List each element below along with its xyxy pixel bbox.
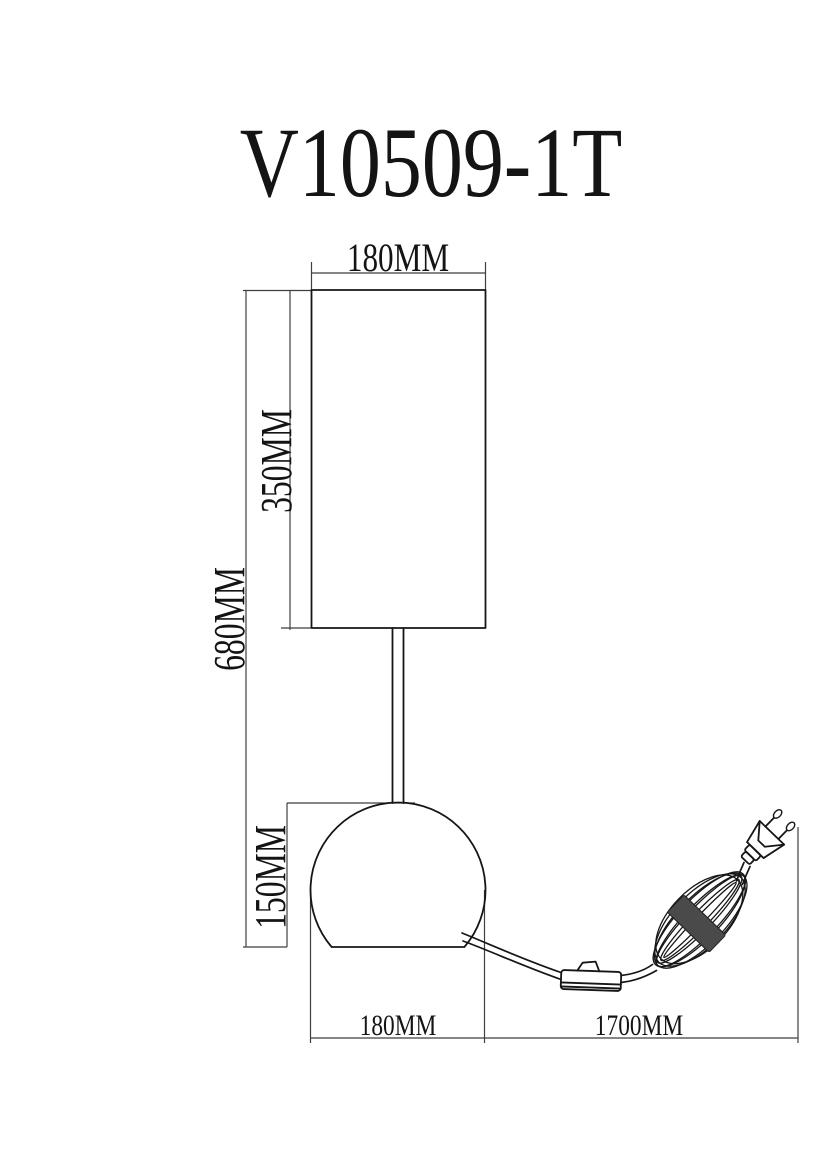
power-cord	[462, 933, 657, 983]
dim-label-total-height: 680MM	[208, 567, 252, 671]
dim-label-shade-height: 350MM	[255, 409, 299, 513]
lamp-shade-outline	[312, 290, 486, 628]
power-plug	[733, 805, 800, 872]
lamp-base-sphere	[311, 803, 486, 947]
technical-drawing-page: V10509-1T 180MM 350MM 680MM 150MM 180MM …	[0, 0, 825, 1168]
dim-label-base-height: 150MM	[249, 825, 293, 929]
product-code-title: V10509-1T	[240, 113, 623, 213]
dim-label-base-width: 180MM	[360, 1011, 437, 1041]
dim-label-cord-length: 1700MM	[595, 1011, 683, 1041]
inline-switch	[561, 960, 622, 991]
lamp-stem	[393, 628, 404, 803]
dim-label-shade-width: 180MM	[347, 238, 449, 278]
cord-coil	[635, 854, 765, 986]
